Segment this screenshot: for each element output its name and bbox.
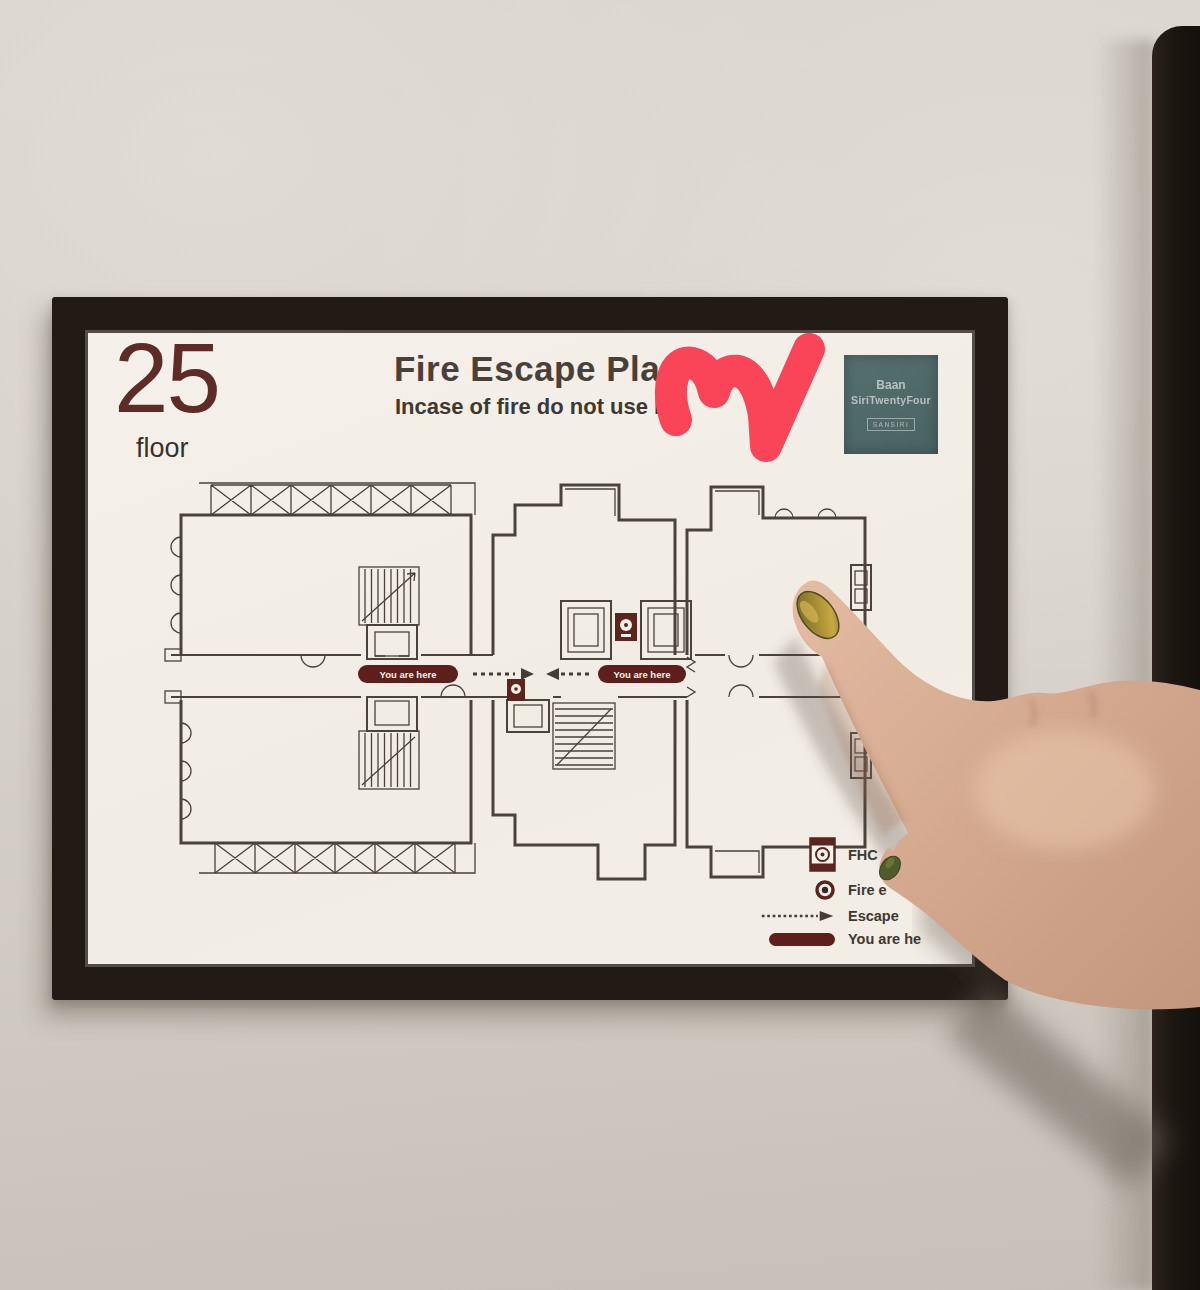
pointing-hand	[0, 0, 1200, 1290]
photo-of-fire-escape-plan: { "sign": { "floor_number": "25", "floor…	[0, 0, 1200, 1290]
knuckle-highlight	[975, 730, 1155, 850]
